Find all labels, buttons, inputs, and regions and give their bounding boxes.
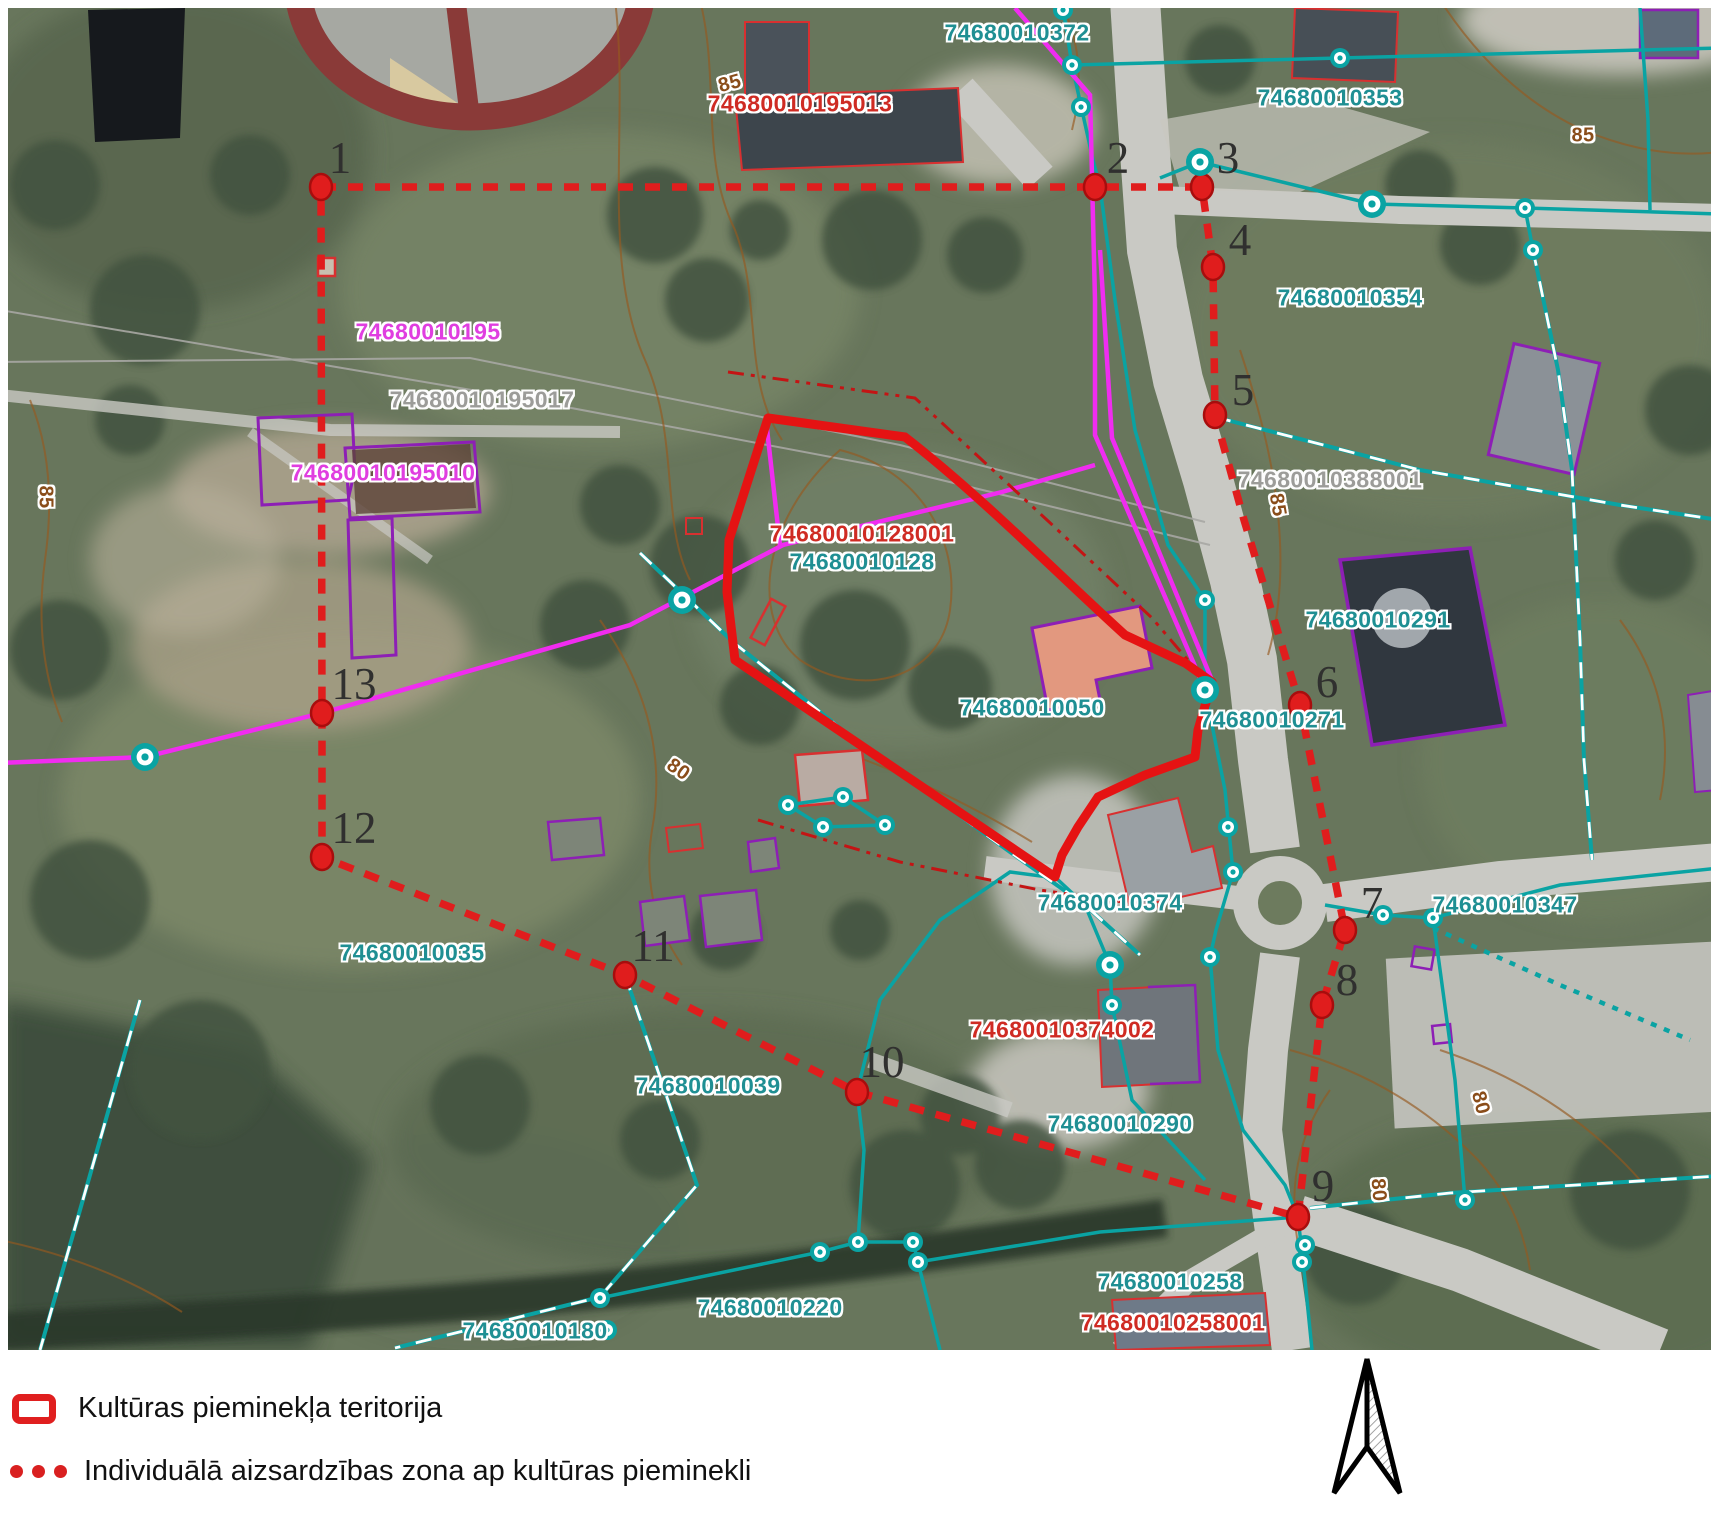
zone-vertex-dot [1334,917,1356,943]
cadastre-node-icon [1230,869,1235,874]
cadastre-node-icon [1202,597,1207,602]
cadastre-node-icon [817,1249,822,1254]
cadastre-node-icon [1302,1242,1307,1247]
cadastre-node-icon [1462,1197,1467,1202]
zone-vertex-dot [1311,992,1333,1018]
cadastre-node-icon [678,596,685,603]
map-sheet: 7468001037274680010353746800101950137468… [0,0,1719,1520]
zone-vertex-dot [1202,254,1224,280]
cadastre-node-icon [820,824,825,829]
aerial-map-graphic [8,8,1711,1350]
cadastre-node-icon [882,822,887,827]
cadastre-node-icon [1368,200,1375,207]
legend-item-zone: Individuālā aizsardzības zona ap kultūra… [10,1455,751,1488]
zone-vertex-dot [310,174,332,200]
cadastre-node-icon [1380,912,1385,917]
zone-vertex-dot [614,962,636,988]
cadastre-node-icon [785,802,790,807]
protection-zone-icon [10,1465,67,1478]
cadastre-node-icon [840,794,845,799]
cadastre-node-icon [604,1327,609,1332]
map-canvas: 7468001037274680010353746800101950137468… [8,8,1711,1350]
cadastre-node-icon [1069,62,1074,67]
cadastre-node-icon [1337,55,1342,60]
cadastre-node-icon [1530,247,1535,252]
cadastre-node-icon [597,1295,602,1300]
zone-vertex-dot [311,700,333,726]
cadastre-node-icon [915,1259,920,1264]
cadastre-node-icon [910,1239,915,1244]
north-arrow-icon [1322,1355,1412,1505]
cadastre-node-icon [1430,915,1435,920]
cadastre-node-icon [1109,1002,1114,1007]
cadastre-node-icon [1106,961,1113,968]
legend-item-monument: Kultūras pieminekļa teritorija [12,1392,442,1425]
zone-vertex-dot [1204,402,1226,428]
cadastre-node-icon [1299,1259,1304,1264]
zone-vertex-dot [311,844,333,870]
cadastre-node-icon [1078,104,1083,109]
zone-vertex-dot [846,1079,868,1105]
zone-vertex-dot [1287,1204,1309,1230]
zone-vertex-dot [1289,692,1311,718]
cadastre-node-icon [1201,686,1208,693]
legend-label-monument: Kultūras pieminekļa teritorija [78,1392,442,1425]
cadastre-node-icon [1207,954,1212,959]
zone-vertex-dot [1191,174,1213,200]
monument-territory-icon [12,1394,56,1424]
zone-vertex-dot [1084,174,1106,200]
cadastre-node-icon [855,1239,860,1244]
cadastre-node-icon [1522,205,1527,210]
cadastre-node-icon [1196,158,1203,165]
legend-label-zone: Individuālā aizsardzības zona ap kultūra… [84,1455,751,1488]
cadastre-node-icon [1225,824,1230,829]
cadastre-node-icon [141,753,148,760]
legend-area: Kultūras pieminekļa teritorija Individuā… [0,1350,1719,1520]
